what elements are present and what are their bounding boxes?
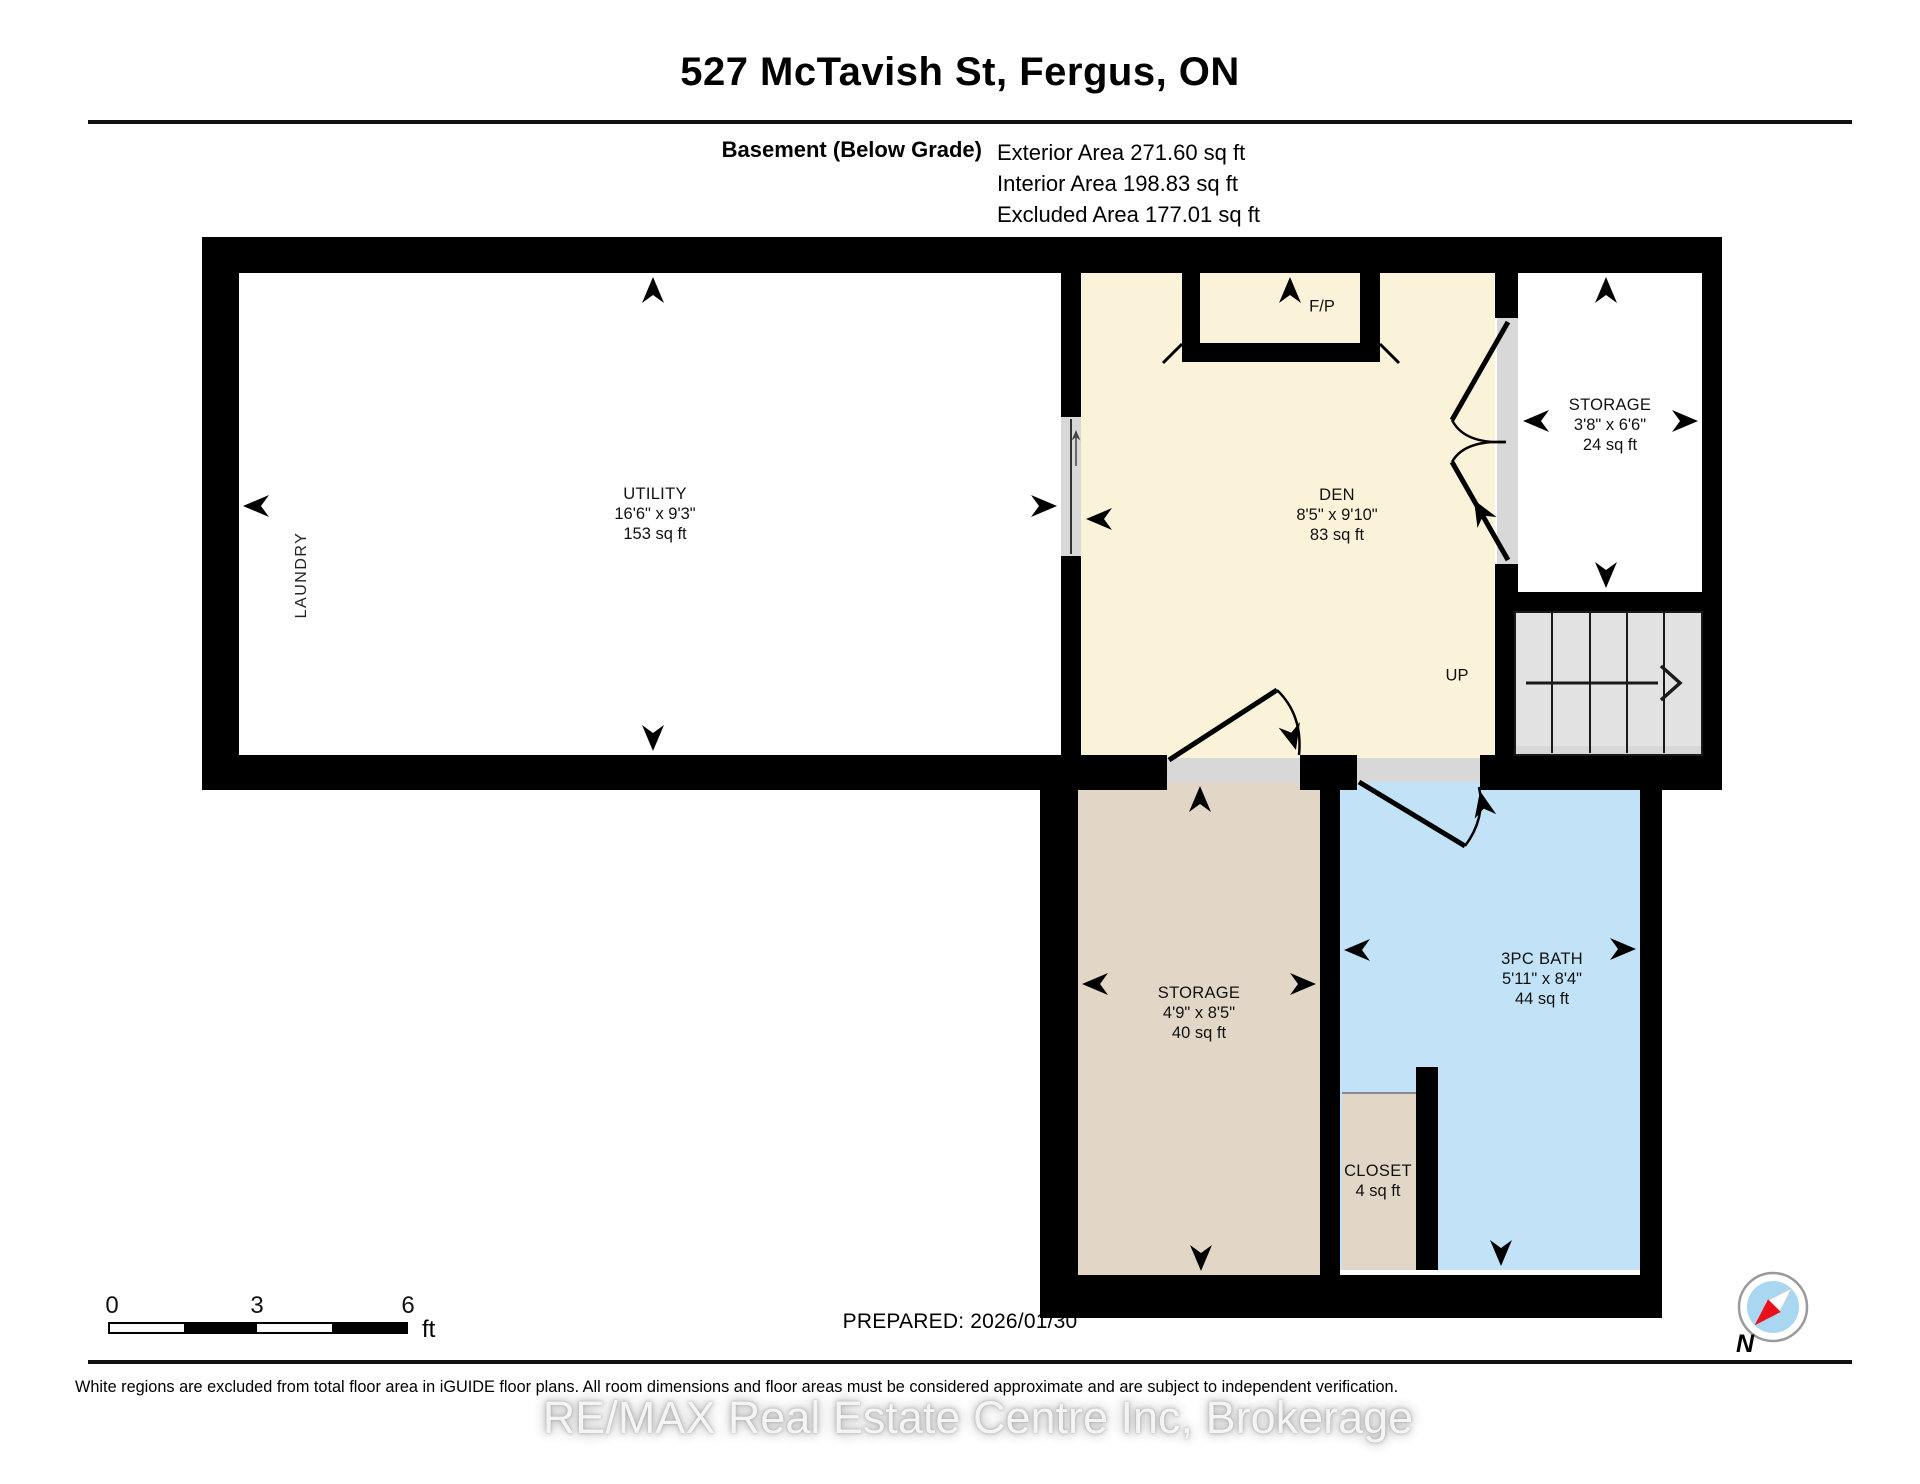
wall-closet-right bbox=[1416, 1067, 1438, 1270]
wall-den-stairs bbox=[1495, 612, 1515, 755]
prepared-date: PREPARED: 2026/01/30 bbox=[843, 1310, 1078, 1334]
storage-lower-door-threshold bbox=[1167, 758, 1300, 782]
wall-outer-top bbox=[202, 237, 1722, 273]
wall-den-bottom-a bbox=[1080, 755, 1167, 790]
wall-outer-right bbox=[1702, 237, 1722, 790]
wall-utility-den-lower bbox=[1061, 556, 1081, 755]
scale-tick-0: 0 bbox=[105, 1292, 118, 1320]
laundry-label: LAUNDRY bbox=[293, 532, 311, 619]
bath-door-threshold bbox=[1357, 758, 1480, 782]
bath-label: 3PC BATH 5'11" x 8'4" 44 sq ft bbox=[1501, 949, 1583, 1009]
wall-storage-stairs bbox=[1495, 592, 1722, 612]
stairs-up-label: UP bbox=[1446, 667, 1469, 686]
divider-bottom bbox=[88, 1360, 1852, 1364]
wall-utility-bottom bbox=[202, 755, 1080, 790]
wall-fireplace-bottom bbox=[1182, 343, 1380, 362]
wall-outer-left bbox=[202, 237, 239, 790]
north-label: N bbox=[1736, 1330, 1754, 1359]
wall-bath-right bbox=[1640, 790, 1662, 1275]
scale-unit: ft bbox=[422, 1316, 435, 1344]
scale-tick-3: 3 bbox=[250, 1292, 263, 1320]
wall-den-right-mid bbox=[1495, 564, 1518, 592]
wall-lower-bottom bbox=[1040, 1275, 1662, 1318]
floor-plan bbox=[0, 0, 1920, 1484]
den-label: DEN 8'5" x 9'10" 83 sq ft bbox=[1296, 485, 1377, 545]
stairs-floor bbox=[1515, 612, 1702, 748]
scale-tick-6: 6 bbox=[401, 1292, 414, 1320]
scale-bar-strip bbox=[108, 1322, 408, 1334]
utility-label: UTILITY 16'6" x 9'3" 153 sq ft bbox=[614, 484, 695, 544]
wall-fireplace-left bbox=[1182, 273, 1200, 343]
wall-lower-left bbox=[1040, 790, 1078, 1318]
fireplace-label: F/P bbox=[1309, 298, 1335, 317]
stairs-landing-strip bbox=[1515, 746, 1702, 755]
floorplan-page: { "header": { "title": "527 McTavish St,… bbox=[0, 0, 1920, 1484]
wall-utility-den-upper bbox=[1061, 273, 1081, 417]
brokerage-watermark: RE/MAX Real Estate Centre Inc, Brokerage bbox=[543, 1392, 1413, 1444]
closet-label: CLOSET 4 sq ft bbox=[1344, 1161, 1412, 1201]
storage-upper-label: STORAGE 3'8" x 6'6" 24 sq ft bbox=[1569, 395, 1651, 455]
wall-stairs-bottom bbox=[1480, 755, 1722, 790]
wall-storage-bath bbox=[1320, 782, 1340, 1275]
wall-den-right-upper bbox=[1495, 273, 1518, 318]
storage-lower-label: STORAGE 4'9" x 8'5" 40 sq ft bbox=[1158, 983, 1240, 1043]
wall-fireplace-right bbox=[1360, 273, 1380, 343]
